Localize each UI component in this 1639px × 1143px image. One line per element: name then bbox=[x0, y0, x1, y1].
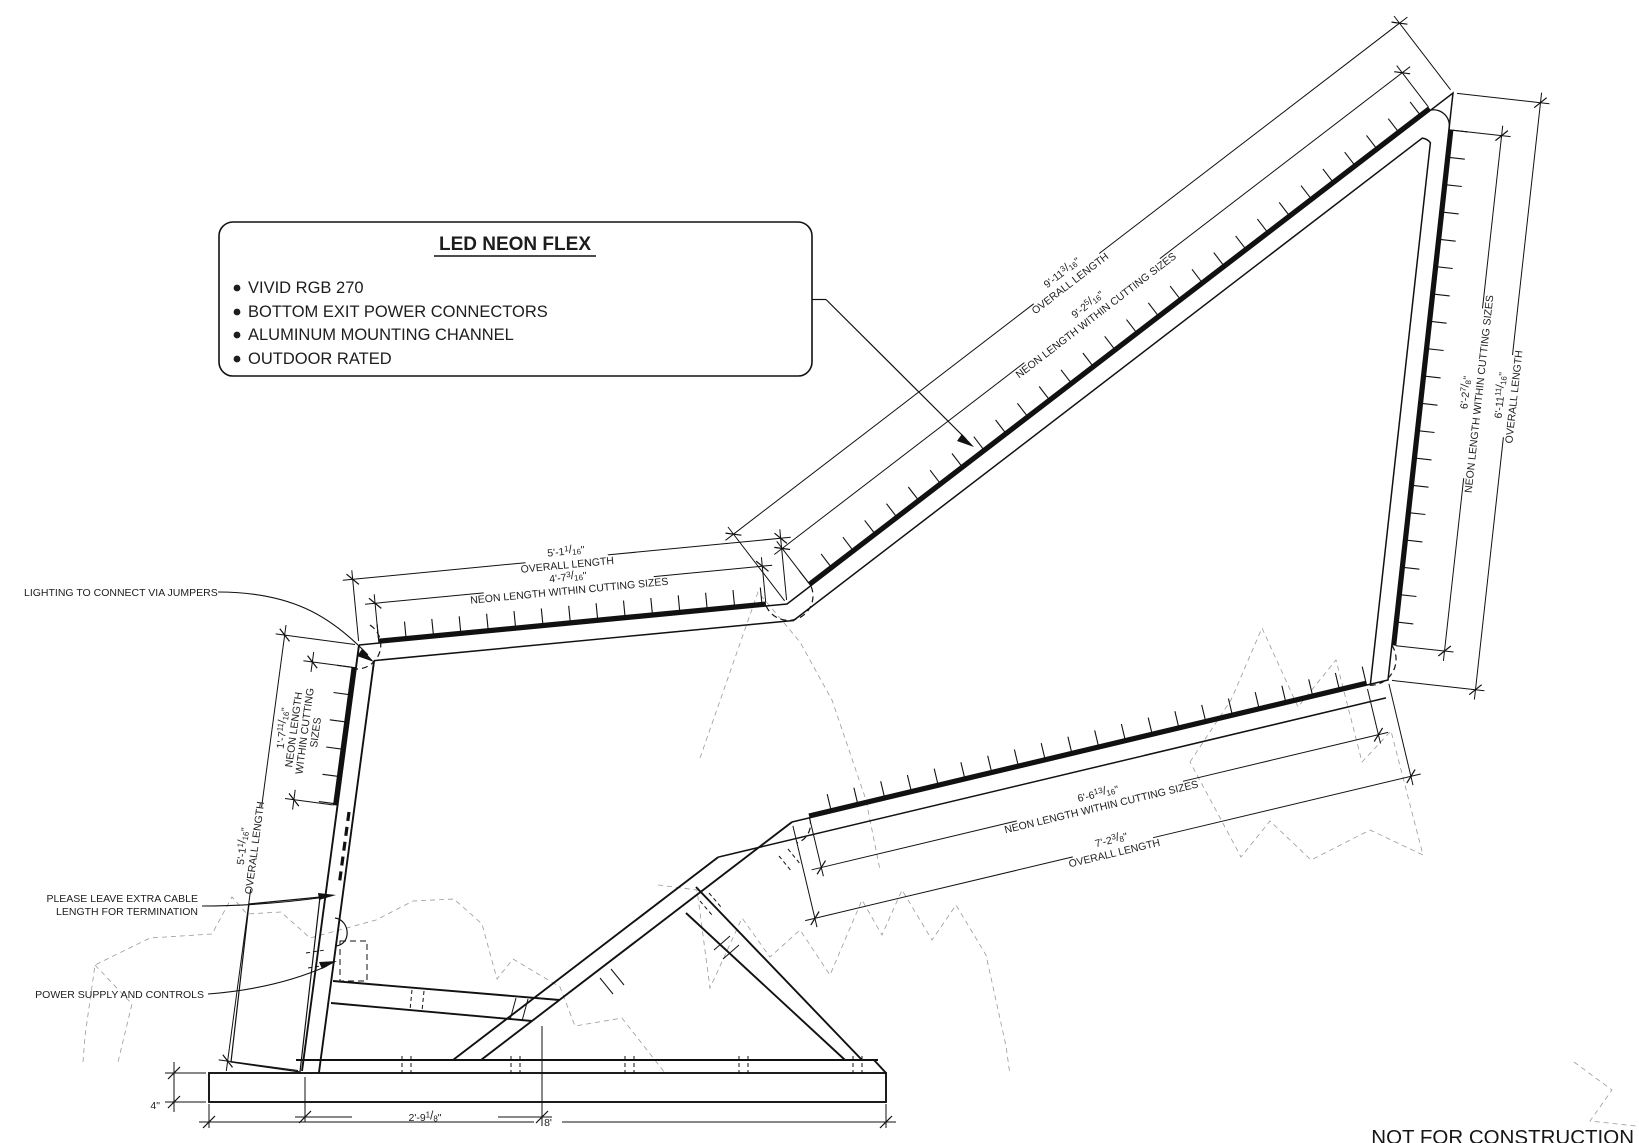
svg-text:PLEASE LEAVE EXTRA CABLE: PLEASE LEAVE EXTRA CABLE bbox=[46, 893, 198, 905]
svg-text:LIGHTING TO CONNECT VIA JUMPER: LIGHTING TO CONNECT VIA JUMPERS bbox=[24, 587, 218, 599]
svg-text:LED NEON FLEX: LED NEON FLEX bbox=[439, 234, 591, 255]
svg-text:BOTTOM EXIT POWER CONNECTORS: BOTTOM EXIT POWER CONNECTORS bbox=[248, 303, 548, 321]
svg-text:4": 4" bbox=[150, 1100, 160, 1112]
svg-text:OUTDOOR RATED: OUTDOOR RATED bbox=[248, 350, 392, 368]
svg-text:ALUMINUM MOUNTING CHANNEL: ALUMINUM MOUNTING CHANNEL bbox=[248, 326, 514, 344]
svg-text:POWER SUPPLY AND CONTROLS: POWER SUPPLY AND CONTROLS bbox=[35, 989, 204, 1001]
svg-text:VIVID RGB 270: VIVID RGB 270 bbox=[248, 279, 364, 297]
svg-text:8': 8' bbox=[544, 1117, 552, 1129]
svg-text:NOT FOR CONSTRUCTION: NOT FOR CONSTRUCTION bbox=[1371, 1126, 1634, 1143]
svg-text:LENGTH FOR TERMINATION: LENGTH FOR TERMINATION bbox=[56, 906, 198, 918]
